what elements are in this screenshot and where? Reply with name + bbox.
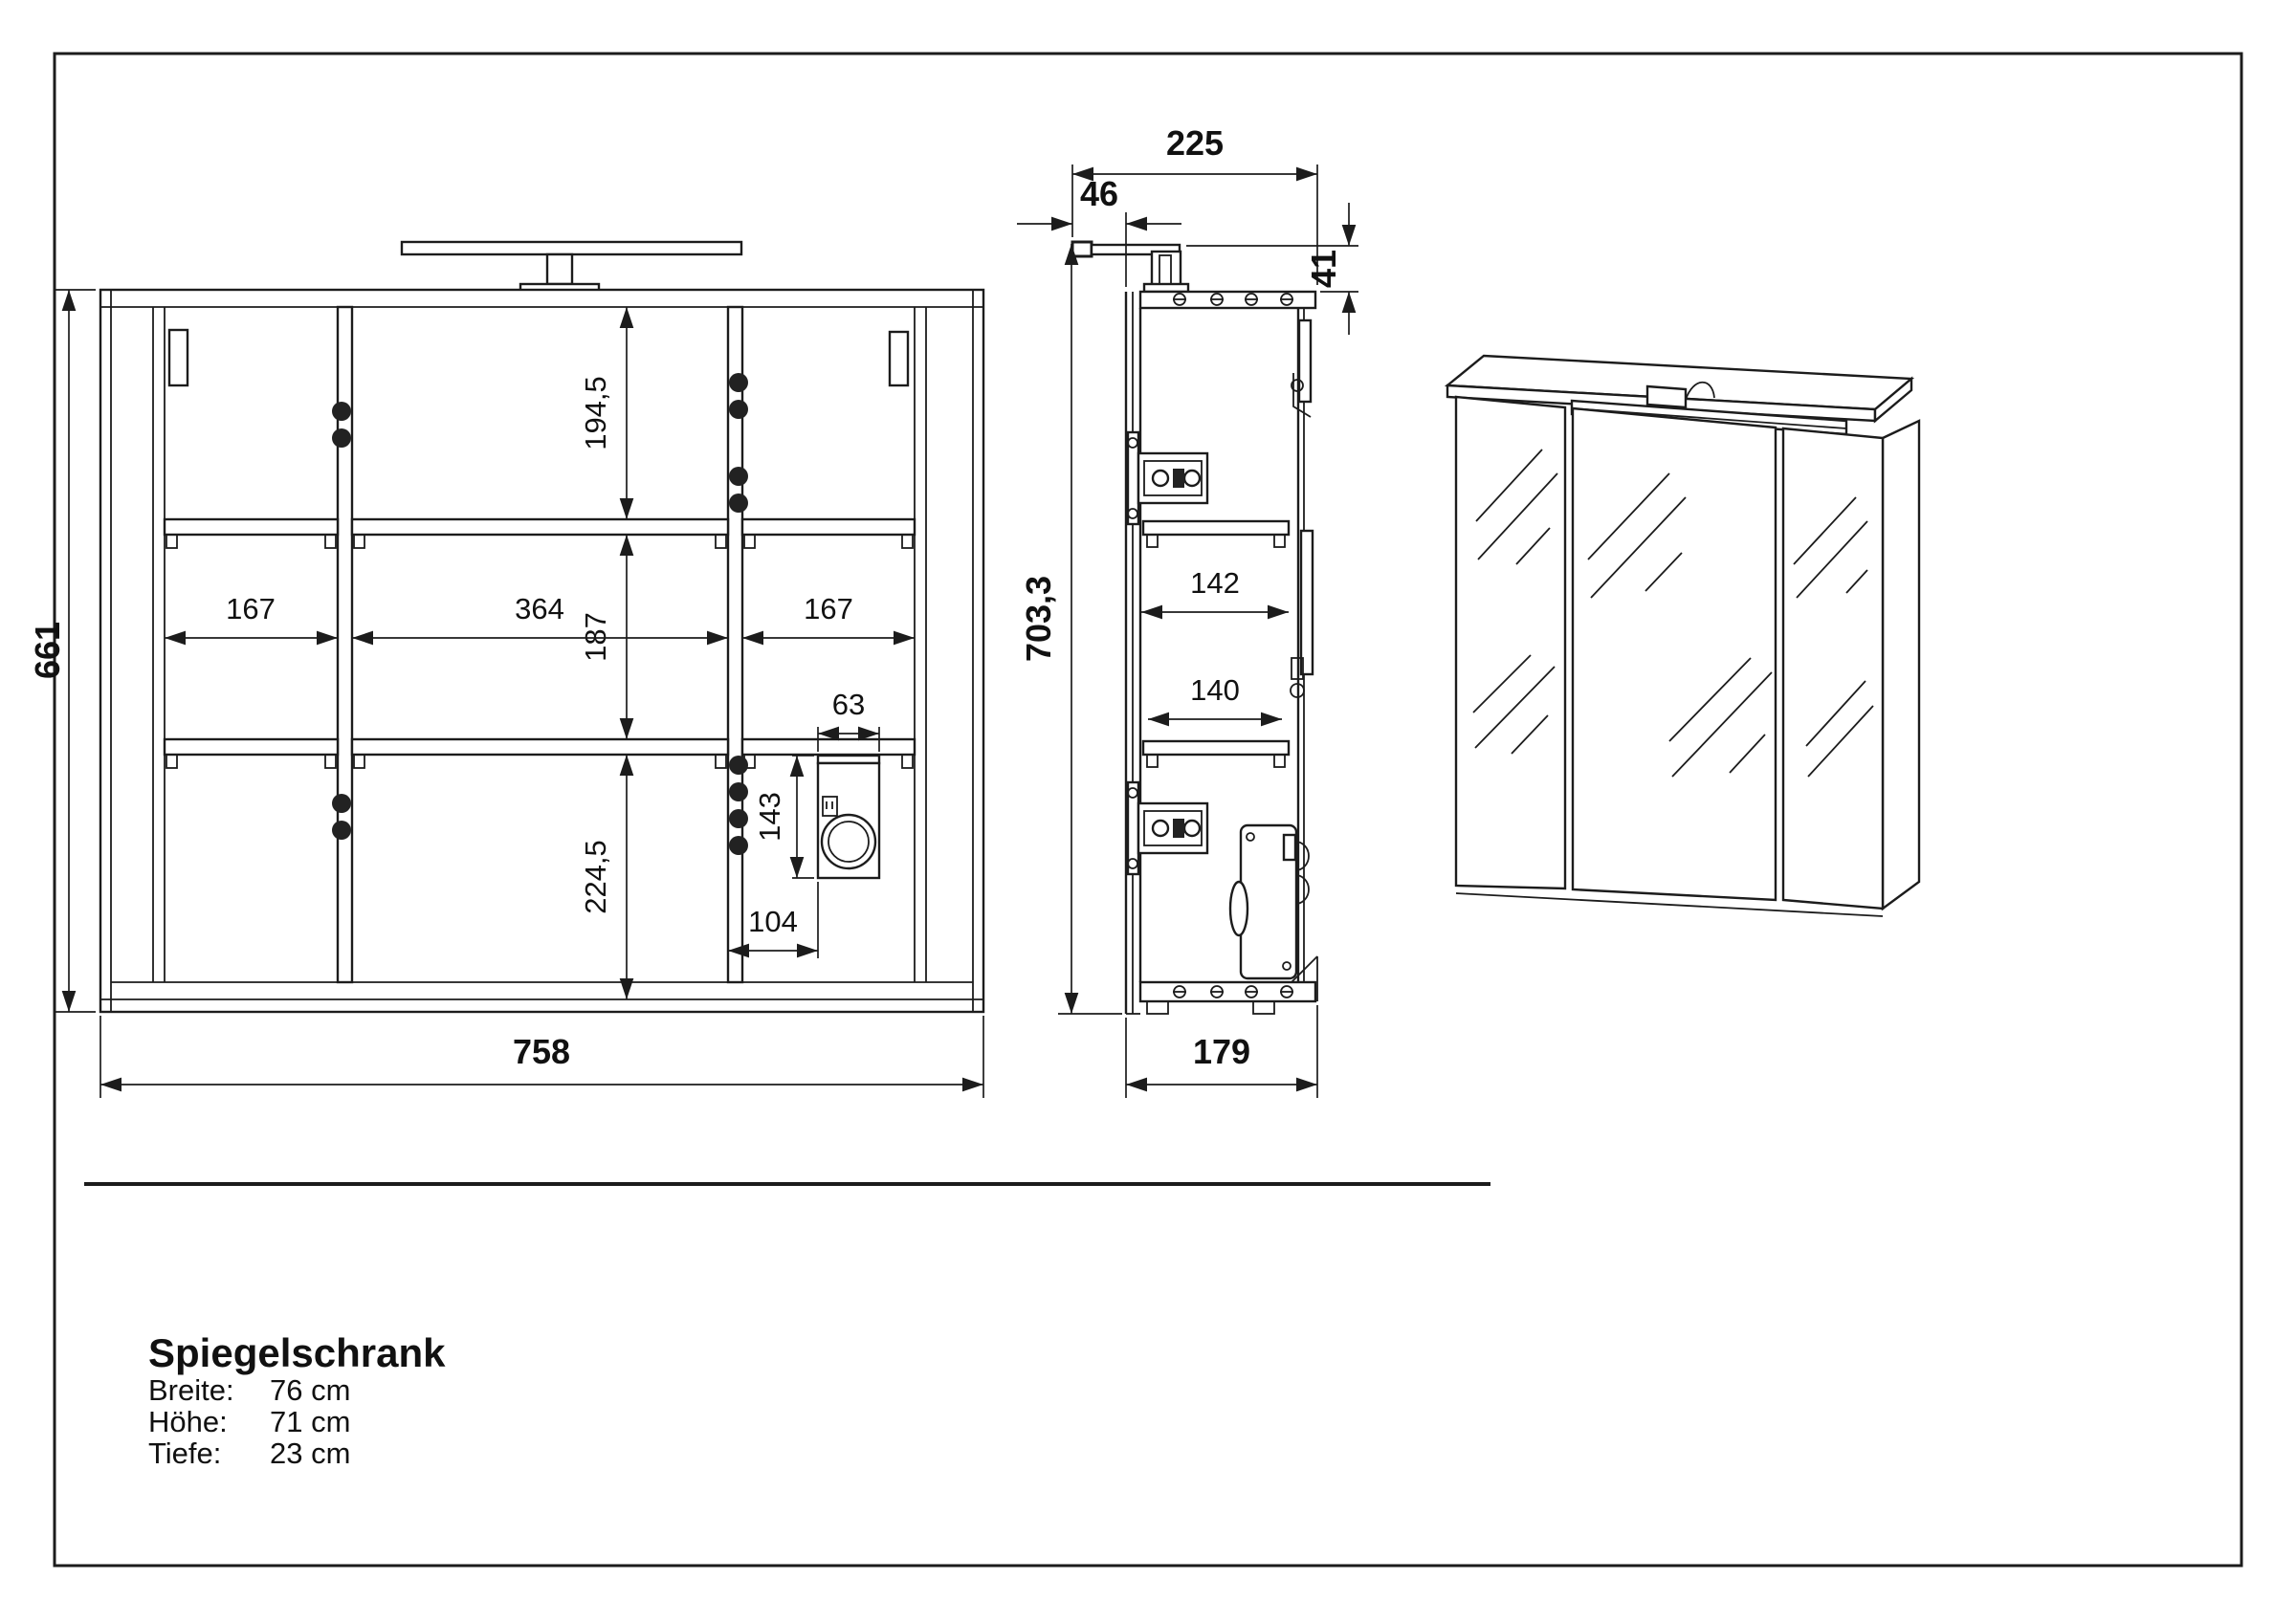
title-block: Spiegelschrank Breite: 76 cm Höhe: 71 cm… [148,1330,446,1470]
persp-door-center [1573,408,1776,900]
dim-label-167-left: 167 [226,592,276,625]
front-handle-left [169,330,188,385]
dim-label-41: 41 [1304,250,1343,288]
front-view: 661 194,5 187 224,5 167 364 167 63 [28,242,983,1098]
dim-front-width: 758 [100,1016,983,1098]
spec-value-width: 76 cm [270,1373,350,1407]
persp-door-right [1783,428,1883,909]
persp-door-left [1456,397,1565,888]
side-electric-box [1230,825,1309,978]
spec-label-height: Höhe: [148,1405,228,1438]
spec-label-width: Breite: [148,1373,234,1407]
dim-label-194-5: 194,5 [579,376,612,450]
dim-label-225: 225 [1166,123,1224,163]
dim-side-body-depth: 179 [1126,1005,1317,1098]
dim-label-142: 142 [1190,566,1240,600]
front-lamp [402,242,741,292]
dim-label-224-5: 224,5 [579,840,612,914]
persp-right-gable [1883,421,1919,909]
side-mirror-door [1126,292,1140,1014]
side-view: 225 46 41 703,3 142 140 [1017,123,1358,1098]
dim-side-height-total: 703,3 [1019,244,1122,1014]
side-shelves [1143,521,1289,767]
dim-side-shelf-depths: 142 140 [1141,566,1289,719]
dim-label-661: 661 [28,622,67,679]
technical-drawing-page: 661 194,5 187 224,5 167 364 167 63 [0,0,2296,1623]
perspective-view [1447,356,1919,916]
dim-label-63: 63 [832,688,865,721]
dim-label-143: 143 [753,792,786,842]
spec-label-depth: Tiefe: [148,1437,221,1470]
side-lamp-arm [1072,242,1188,292]
dim-label-46: 46 [1080,174,1118,213]
product-title: Spiegelschrank [148,1330,446,1375]
dim-side-lamp-height: 41 [1186,203,1358,335]
front-carcass [100,290,983,1012]
dim-label-364: 364 [515,592,564,625]
dim-label-104: 104 [748,905,798,938]
dim-label-703-3: 703,3 [1019,576,1058,662]
dim-label-179: 179 [1193,1032,1250,1071]
dim-label-187: 187 [579,612,612,662]
dim-front-height: 661 [28,290,96,1012]
spec-value-depth: 23 cm [270,1437,350,1470]
front-handle-right [890,332,908,385]
spec-value-height: 71 cm [270,1405,350,1438]
dim-label-758: 758 [513,1032,570,1071]
front-socket-box [818,756,879,878]
dim-label-167-right: 167 [804,592,853,625]
drawing-canvas: 661 194,5 187 224,5 167 364 167 63 [0,0,2296,1623]
dim-label-140: 140 [1190,673,1240,707]
